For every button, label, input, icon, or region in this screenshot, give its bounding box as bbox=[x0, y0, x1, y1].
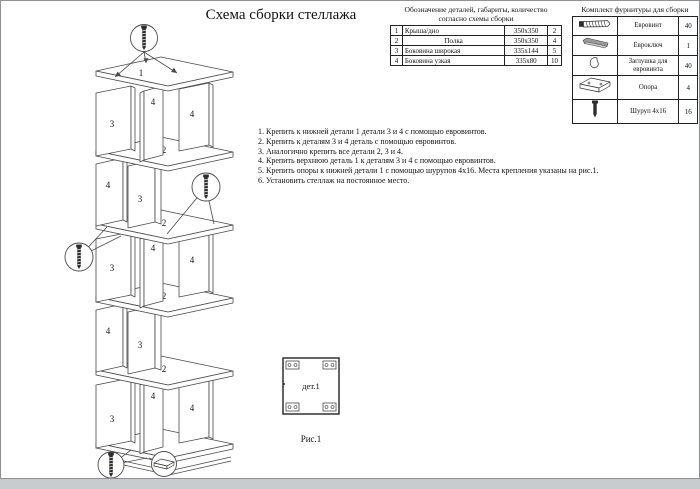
assembly-exploded-diagram: 1 3 4 4 2 4 3 bbox=[51, 21, 261, 479]
svg-text:3: 3 bbox=[138, 194, 143, 204]
svg-text:4: 4 bbox=[106, 180, 111, 190]
svg-text:4: 4 bbox=[106, 326, 111, 336]
svg-text:4: 4 bbox=[151, 391, 156, 401]
table-row: Заглушка для евровинта 40 bbox=[573, 56, 698, 76]
part-name: Боковина широкая bbox=[402, 46, 504, 56]
table-row: 1 Крыша/дно 350х350 2 bbox=[391, 26, 562, 36]
part-number: 4 bbox=[391, 56, 403, 66]
svg-text:2: 2 bbox=[162, 364, 167, 374]
part-size: 335х144 bbox=[505, 46, 548, 56]
part-size: 350х350 bbox=[505, 36, 548, 46]
euroscrew-icon bbox=[578, 18, 612, 30]
instruction-step: 6. Установить стеллаж на постоянное мест… bbox=[258, 176, 658, 186]
part-size: 350х350 bbox=[505, 26, 548, 36]
hardware-name: Шуруп 4х16 bbox=[617, 100, 679, 124]
svg-text:3: 3 bbox=[110, 263, 115, 273]
svg-text:3: 3 bbox=[138, 340, 143, 350]
part-name: Крыша/дно bbox=[402, 26, 504, 36]
part-qty: 4 bbox=[548, 36, 562, 46]
assembly-instructions: 1. Крепить к нижней детали 1 детали 3 и … bbox=[258, 127, 658, 186]
hardware-name: Опора bbox=[617, 76, 679, 100]
side-panels-level-2: 4 3 bbox=[96, 158, 161, 228]
side-panels-level-4: 4 3 bbox=[96, 304, 161, 374]
part-name: Боковина узкая bbox=[402, 56, 504, 66]
instruction-step: 5. Крепить опоры к нижней детали 1 с пом… bbox=[258, 166, 658, 176]
part-number: 2 bbox=[391, 36, 403, 46]
table-row: Опора 4 bbox=[573, 76, 698, 100]
hexkey-icon bbox=[580, 36, 610, 50]
part-number: 1 bbox=[391, 26, 403, 36]
svg-text:4: 4 bbox=[190, 403, 195, 413]
document-page: Схема сборки стеллажа Обозначение детале… bbox=[0, 0, 700, 479]
part-number: 3 bbox=[391, 46, 403, 56]
screw-icon bbox=[591, 100, 599, 118]
svg-text:3: 3 bbox=[110, 119, 115, 129]
svg-text:1: 1 bbox=[139, 68, 144, 78]
part-qty: 2 bbox=[548, 26, 562, 36]
hardware-name: Евровинт bbox=[617, 17, 679, 36]
hardware-table-title: Комплект фурнитуры для сборки bbox=[570, 5, 700, 14]
figure-1-block: дет.1 Рис.1 bbox=[279, 356, 343, 444]
cap-icon bbox=[589, 56, 601, 70]
svg-text:4: 4 bbox=[151, 97, 156, 107]
part-qty: 5 bbox=[548, 46, 562, 56]
figure-caption: Рис.1 bbox=[279, 434, 343, 444]
figure-part-label: дет.1 bbox=[302, 381, 320, 391]
svg-text:4: 4 bbox=[190, 109, 195, 119]
hardware-name: Евроключ bbox=[617, 36, 679, 56]
instruction-step: 2. Крепить к деталям 3 и 4 деталь с помо… bbox=[258, 137, 658, 147]
hardware-table-block: Комплект фурнитуры для сборки bbox=[570, 5, 700, 124]
hardware-qty: 16 bbox=[679, 100, 698, 124]
table-row: Евроключ 1 bbox=[573, 36, 698, 56]
parts-table-caption-line1: Обозначение деталей, габариты, количеств… bbox=[383, 5, 569, 14]
part-qty: 10 bbox=[548, 56, 562, 66]
table-row: 2 Полка 350х350 4 bbox=[391, 36, 562, 46]
parts-table-block: Обозначение деталей, габариты, количеств… bbox=[383, 5, 569, 66]
table-row: Евровинт 40 bbox=[573, 17, 698, 36]
parts-table-caption-line2: согласно схемы сборки bbox=[383, 14, 569, 23]
figure-1-drawing: дет.1 bbox=[280, 356, 342, 418]
svg-text:3: 3 bbox=[110, 414, 115, 424]
instruction-step: 3. Аналогично крепить все детали 2, 3 и … bbox=[258, 147, 658, 157]
instruction-step: 4. Крепить верхнюю деталь 1 к деталям 3 … bbox=[258, 156, 658, 166]
hardware-qty: 4 bbox=[679, 76, 698, 100]
hardware-qty: 40 bbox=[679, 17, 698, 36]
svg-text:4: 4 bbox=[151, 243, 156, 253]
hardware-qty: 40 bbox=[679, 56, 698, 76]
instruction-step: 1. Крепить к нижней детали 1 детали 3 и … bbox=[258, 127, 658, 137]
table-row: 4 Боковина узкая 335х80 10 bbox=[391, 56, 562, 66]
table-row: Шуруп 4х16 16 bbox=[573, 100, 698, 124]
part-size: 335х80 bbox=[505, 56, 548, 66]
svg-text:4: 4 bbox=[190, 255, 195, 265]
part-name: Полка bbox=[402, 36, 504, 46]
hardware-name: Заглушка для евровинта bbox=[617, 56, 679, 76]
svg-text:2: 2 bbox=[162, 218, 167, 228]
hardware-qty: 1 bbox=[679, 36, 698, 56]
page-bottom-strip bbox=[0, 478, 700, 489]
parts-table: 1 Крыша/дно 350х350 2 2 Полка 350х350 4 … bbox=[390, 25, 562, 66]
hardware-table: Евровинт 40 Евроключ 1 bbox=[572, 16, 698, 124]
table-row: 3 Боковина широкая 335х144 5 bbox=[391, 46, 562, 56]
support-icon bbox=[577, 76, 613, 94]
